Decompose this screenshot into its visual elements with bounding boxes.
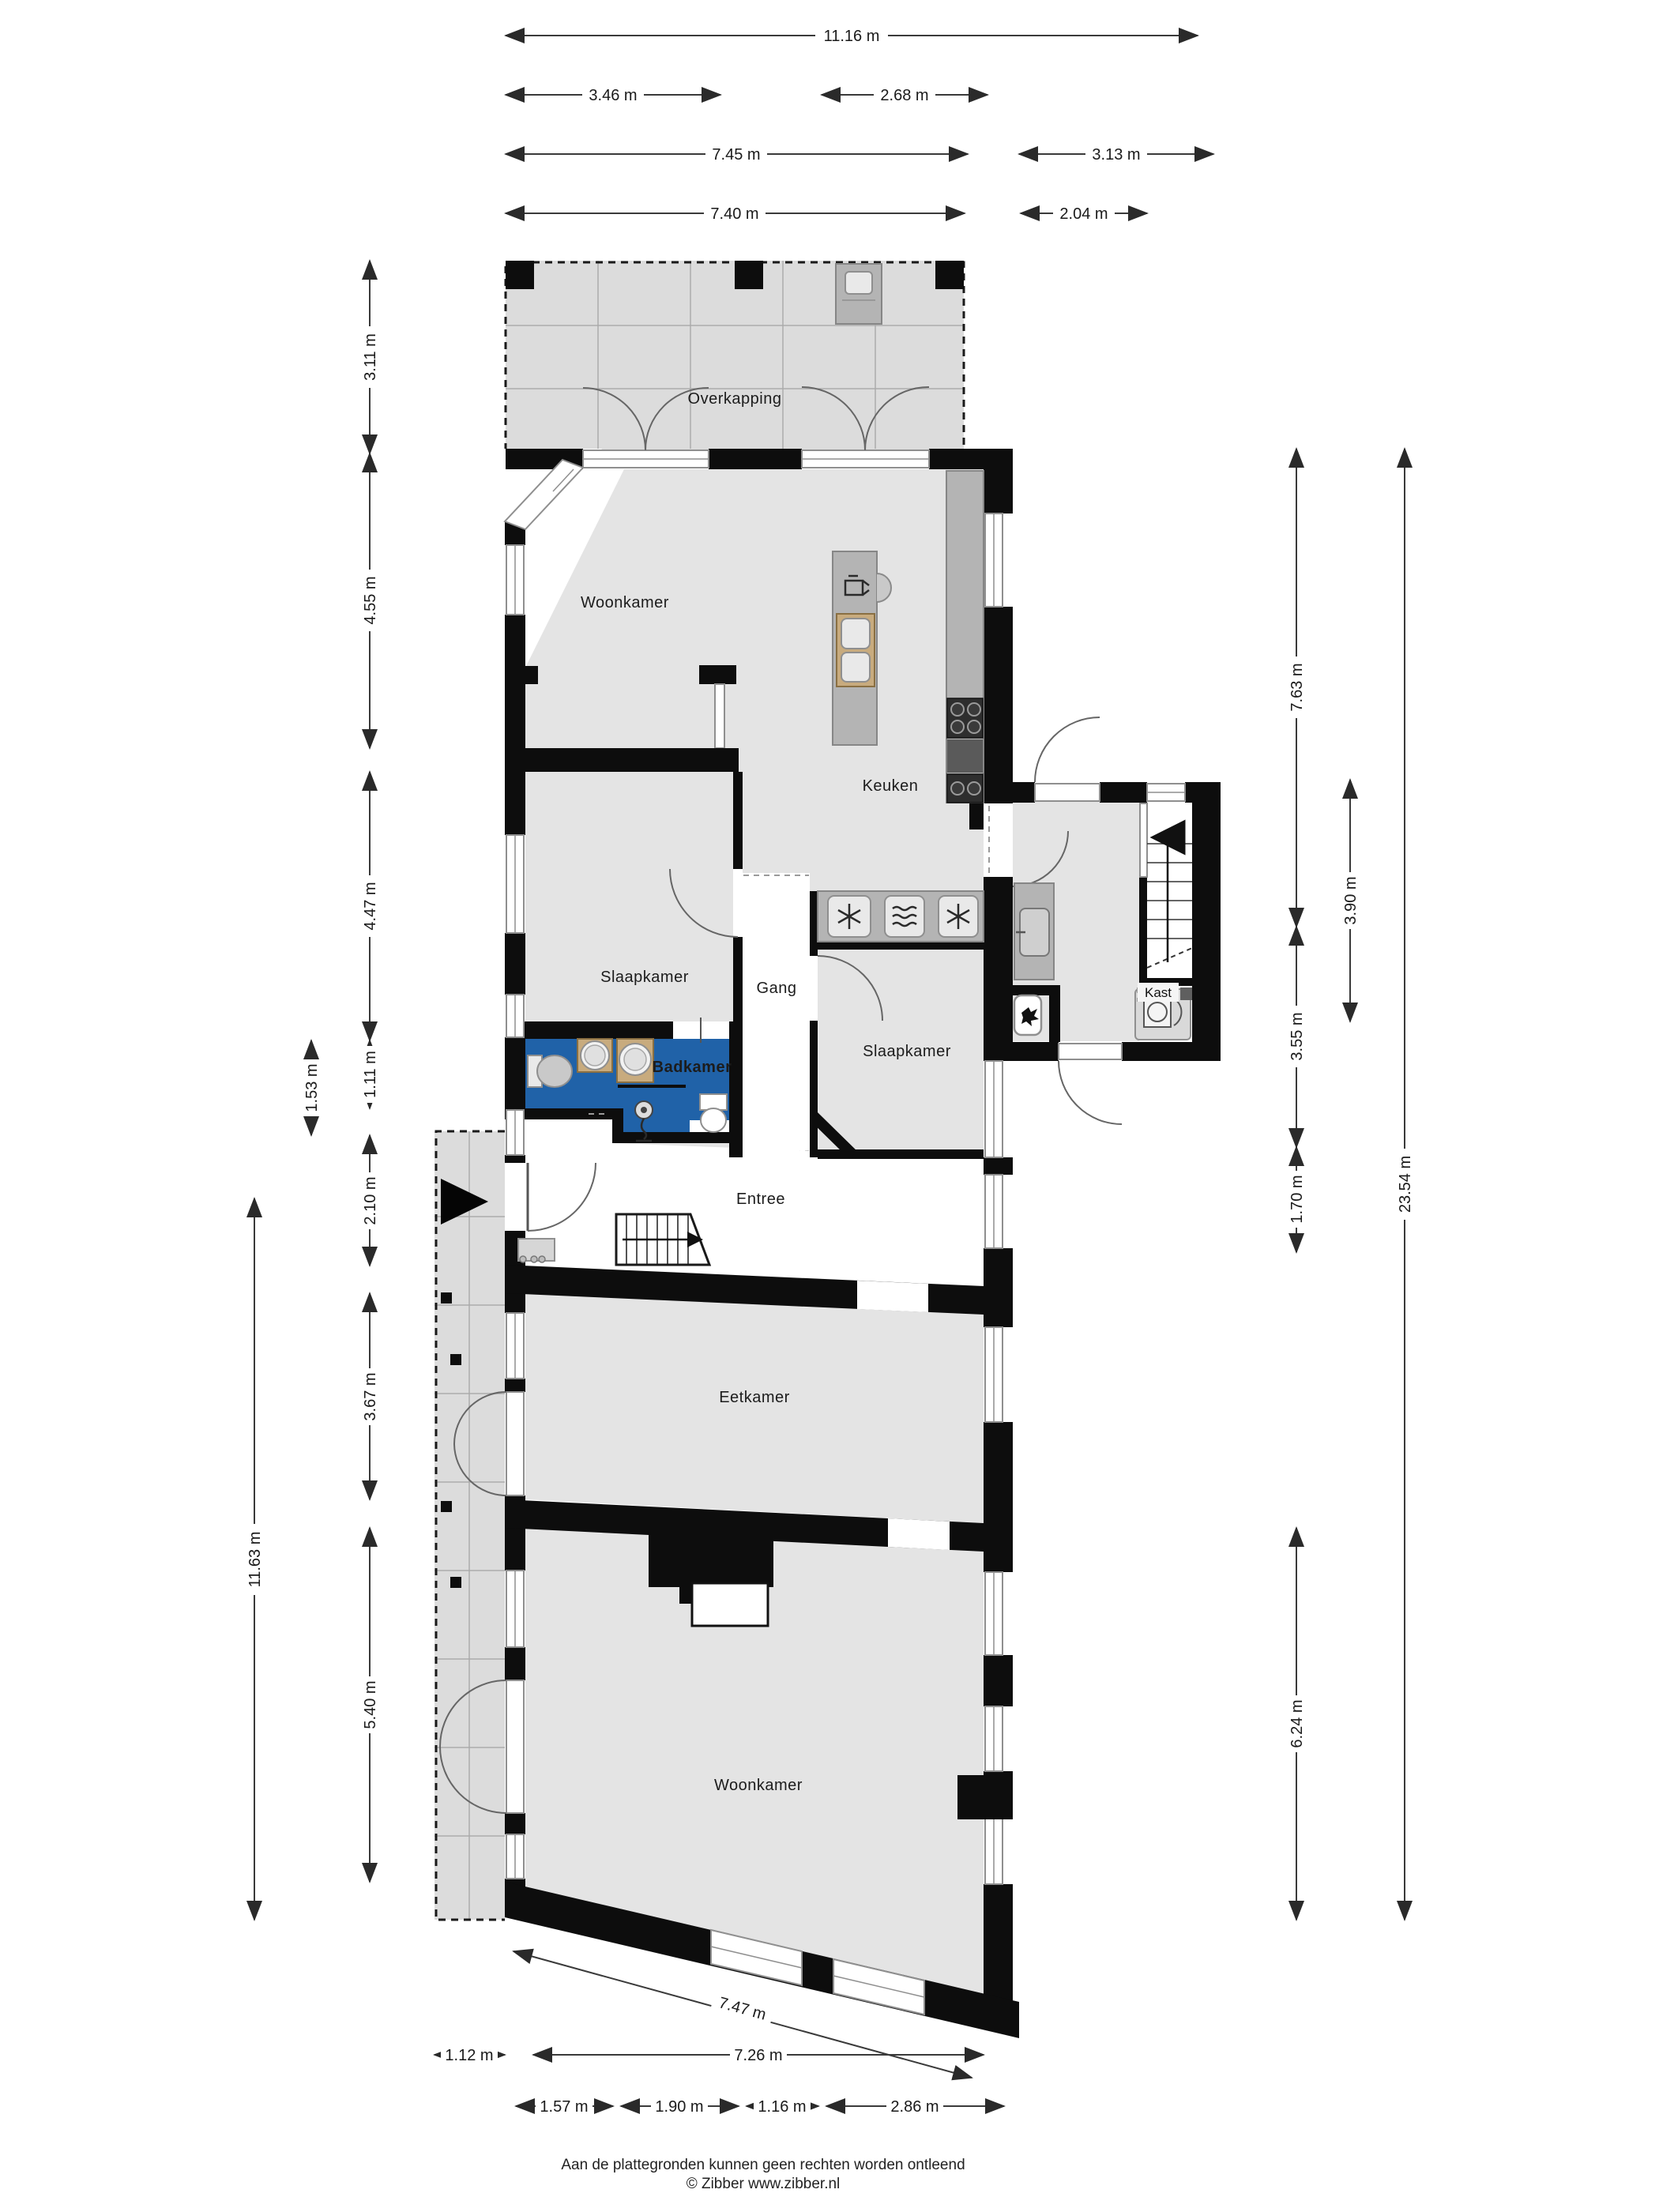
- room-label-overkapping: Overkapping: [688, 390, 782, 408]
- overkapping-area: [506, 261, 964, 450]
- svg-text:5.40 m: 5.40 m: [362, 1680, 379, 1729]
- dim-right-4: 3.90 m: [1340, 780, 1360, 1021]
- dim-top-3: 7.45 m: [506, 145, 968, 164]
- svg-text:3.11 m: 3.11 m: [362, 333, 379, 381]
- svg-text:7.40 m: 7.40 m: [710, 205, 758, 223]
- svg-text:1.53 m: 1.53 m: [303, 1063, 321, 1112]
- dim-left-2: 4.47 m: [359, 772, 379, 1040]
- terrace-post: [450, 1577, 461, 1588]
- dim-top-5: 7.40 m: [506, 204, 965, 224]
- terrace-post: [441, 1292, 452, 1303]
- dim-right-1: 3.55 m: [1286, 927, 1306, 1147]
- oven-microwave-icon: [885, 896, 924, 937]
- dim-right-2: 1.70 m: [1286, 1147, 1306, 1252]
- toilet-icon: [528, 1055, 572, 1087]
- dim-top-1: 3.46 m: [506, 85, 720, 105]
- appliance-counter: [818, 891, 984, 942]
- dim-left-1: 4.55 m: [359, 453, 379, 748]
- extension-toilet-icon: [1014, 995, 1041, 1035]
- svg-text:1.90 m: 1.90 m: [655, 2098, 703, 2116]
- svg-text:3.46 m: 3.46 m: [589, 87, 637, 104]
- svg-text:7.63 m: 7.63 m: [1288, 663, 1306, 711]
- room-label-gang: Gang: [757, 980, 797, 997]
- overkapping-post: [935, 261, 964, 289]
- room-label-slaapkamer-right: Slaapkamer: [863, 1043, 951, 1060]
- kitchen-counter: [946, 471, 984, 803]
- dim-left-8: 11.63 m: [244, 1198, 264, 1920]
- dim-right-3: 6.24 m: [1286, 1528, 1306, 1920]
- dim-bottom-4: 1.90 m: [621, 2097, 739, 2116]
- room-label-woonkamer-top: Woonkamer: [581, 594, 669, 611]
- svg-text:1.12 m: 1.12 m: [445, 2047, 493, 2064]
- svg-text:1.16 m: 1.16 m: [758, 2098, 806, 2116]
- extension-back-door-bottom: [1059, 1044, 1122, 1124]
- svg-text:7.26 m: 7.26 m: [734, 2047, 782, 2064]
- dim-right-5: 23.54 m: [1394, 449, 1414, 1920]
- terrace-post: [441, 1501, 452, 1512]
- dim-top-4: 3.13 m: [1019, 145, 1213, 164]
- entree-eetkamer-opening: [857, 1281, 928, 1312]
- dim-left-3: 1.11 m: [359, 1040, 379, 1108]
- dim-top-2: 2.68 m: [822, 85, 987, 105]
- extension-back-door-top: [1035, 717, 1100, 801]
- room-label-keuken: Keuken: [863, 777, 919, 795]
- room-label-slaapkamer-left: Slaapkamer: [600, 969, 689, 986]
- stairwell-door: [1140, 803, 1147, 877]
- floorplan-page: Overkapping Woonkamer Keuken Slaapkamer …: [0, 0, 1659, 2212]
- svg-text:3.67 m: 3.67 m: [362, 1372, 379, 1420]
- extension-sink-counter: [1014, 883, 1054, 980]
- dim-bottom-5: 1.16 m: [747, 2097, 818, 2116]
- room-label-kast: Kast: [1138, 983, 1179, 1002]
- dim-left-0: 3.11 m: [359, 261, 379, 453]
- room-label-badkamer: Badkamer: [653, 1059, 732, 1076]
- svg-text:Kast: Kast: [1145, 985, 1172, 1000]
- svg-text:1.70 m: 1.70 m: [1288, 1175, 1306, 1223]
- svg-text:11.16 m: 11.16 m: [824, 28, 880, 45]
- dim-bottom-6: 2.86 m: [826, 2097, 1004, 2116]
- svg-text:3.90 m: 3.90 m: [1342, 876, 1360, 924]
- overkapping-post: [735, 261, 763, 289]
- footer-copyright: © Zibber www.zibber.nl: [687, 2176, 841, 2192]
- footer-disclaimer: Aan de plattegronden kunnen geen rechten…: [561, 2157, 965, 2173]
- kast-bar: [1180, 987, 1192, 1000]
- svg-text:23.54 m: 23.54 m: [1397, 1156, 1414, 1213]
- terrace-post: [450, 1354, 461, 1365]
- dim-top-6: 2.04 m: [1021, 204, 1147, 224]
- svg-text:2.10 m: 2.10 m: [362, 1176, 379, 1224]
- chimney-right: [957, 1775, 1013, 1819]
- svg-text:2.86 m: 2.86 m: [890, 2098, 939, 2116]
- vanity-sink-icon: [577, 1039, 612, 1072]
- svg-text:4.47 m: 4.47 m: [362, 882, 379, 930]
- svg-text:2.04 m: 2.04 m: [1059, 205, 1108, 223]
- dim-top-0: 11.16 m: [506, 26, 1198, 46]
- vanity-sink-icon: [617, 1039, 653, 1082]
- outdoor-kitchen-unit: [836, 264, 882, 324]
- svg-text:4.55 m: 4.55 m: [362, 576, 379, 624]
- room-label-eetkamer: Eetkamer: [719, 1389, 790, 1406]
- eetkamer-floor: [525, 1293, 984, 1523]
- column: [699, 665, 736, 684]
- dim-left-6: 3.67 m: [359, 1293, 379, 1499]
- svg-text:7.45 m: 7.45 m: [712, 146, 760, 164]
- oven-icon: [947, 739, 983, 773]
- gang-floor: [743, 873, 810, 1157]
- svg-text:3.13 m: 3.13 m: [1092, 146, 1140, 164]
- svg-text:1.57 m: 1.57 m: [540, 2098, 588, 2116]
- svg-text:1.11 m: 1.11 m: [362, 1051, 379, 1098]
- dim-left-4: 1.53 m: [301, 1040, 321, 1135]
- svg-text:6.24 m: 6.24 m: [1288, 1699, 1306, 1747]
- room-label-woonkamer-bottom: Woonkamer: [714, 1777, 803, 1794]
- eetkamer-woonkamer-opening: [888, 1518, 950, 1550]
- svg-text:2.68 m: 2.68 m: [880, 87, 928, 104]
- dim-bottom-1: 1.12 m: [434, 2045, 505, 2065]
- svg-text:3.55 m: 3.55 m: [1288, 1012, 1306, 1060]
- dim-left-5: 2.10 m: [359, 1135, 379, 1266]
- toilet-icon: [700, 1094, 727, 1132]
- room-label-entree: Entree: [736, 1191, 785, 1208]
- entree-radiator: [518, 1239, 555, 1262]
- dim-left-7: 5.40 m: [359, 1528, 379, 1882]
- svg-text:11.63 m: 11.63 m: [246, 1532, 264, 1588]
- floorplan-canvas: Overkapping Woonkamer Keuken Slaapkamer …: [0, 0, 1659, 2212]
- dim-right-0: 7.63 m: [1286, 449, 1306, 927]
- overkapping-post: [506, 261, 534, 289]
- dim-bottom-3: 1.57 m: [516, 2097, 613, 2116]
- footer: Aan de plattegronden kunnen geen rechten…: [561, 2157, 965, 2192]
